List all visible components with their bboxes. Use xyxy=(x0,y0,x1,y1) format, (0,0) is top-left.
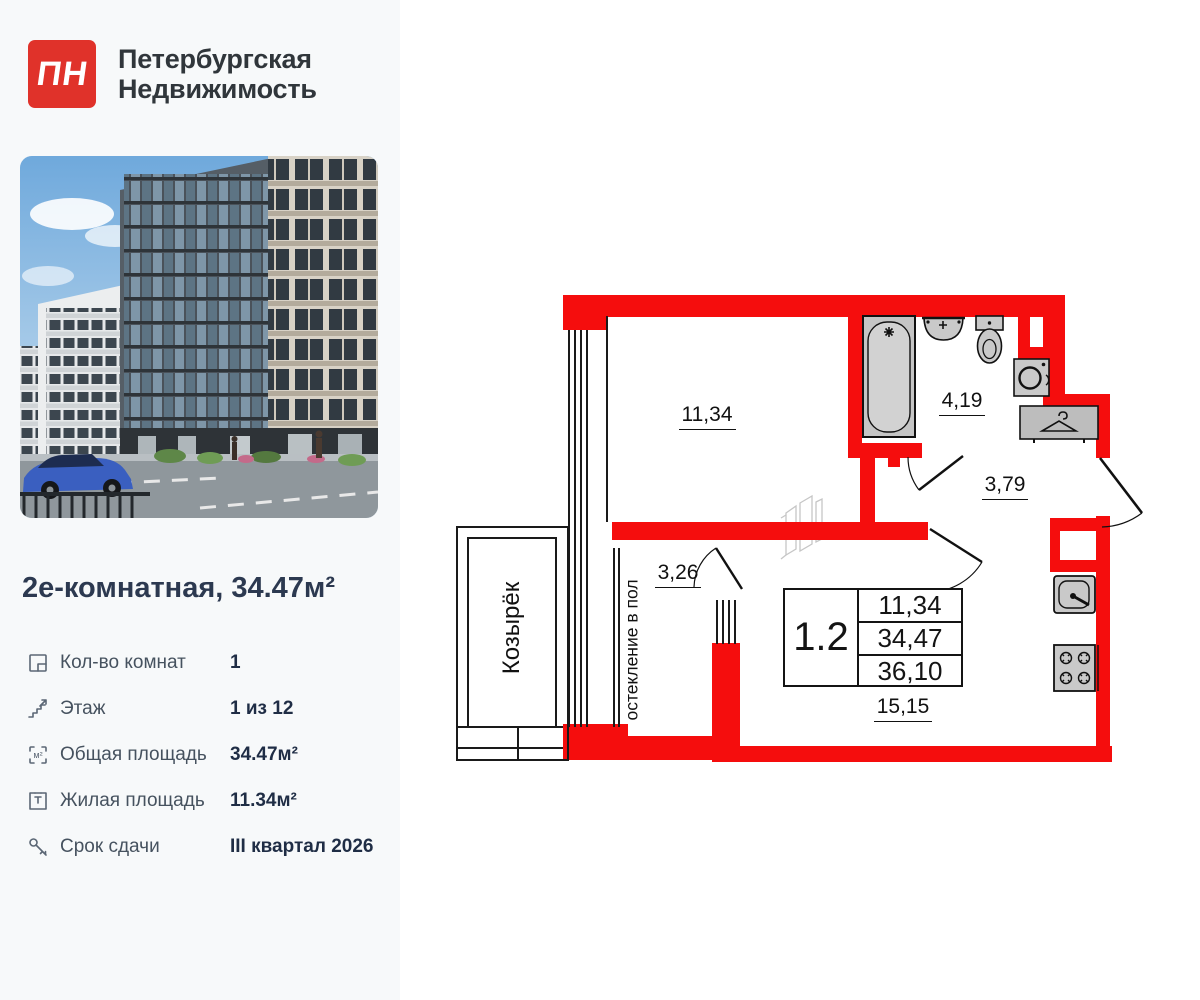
detail-row-living-area: Жилая площадь 11.34м² xyxy=(26,778,376,824)
page: { "brand": { "logo_text": "ПН", "name_li… xyxy=(0,0,1200,1000)
rooms-icon xyxy=(26,651,50,675)
unit-full-area: 36,10 xyxy=(859,654,961,687)
brand-logo: ПН xyxy=(28,40,96,108)
room-label-living: 11,34 xyxy=(655,403,759,427)
building-photo[interactable] xyxy=(20,156,378,518)
floor-plan[interactable]: 11,34 4,19 3,79 3,26 15,15 остекление в … xyxy=(450,285,1165,775)
washing-machine-icon xyxy=(1014,359,1049,396)
unit-info-table: 1.2 11,34 34,47 36,10 xyxy=(783,588,963,687)
stove-icon xyxy=(1054,645,1098,691)
glazing-annotation: остекление в пол xyxy=(622,579,643,720)
svg-text:м²: м² xyxy=(33,750,42,760)
detail-row-deadline: Срок сдачи III квартал 2026 xyxy=(26,824,376,870)
unit-total-area: 34,47 xyxy=(859,621,961,654)
window-glazing-lines xyxy=(568,316,736,727)
room-label-bathroom: 4,19 xyxy=(912,389,1012,413)
wardrobe-icon xyxy=(1020,406,1098,443)
floor-icon xyxy=(26,697,50,721)
living-area-icon xyxy=(26,789,50,813)
canopy-annotation: Козырёк xyxy=(498,582,526,675)
total-area-icon: м² xyxy=(26,743,50,767)
brand-name: Петербургская Недвижимость xyxy=(118,44,317,104)
key-icon xyxy=(26,835,50,859)
detail-row-total-area: м² Общая площадь 34.47м² xyxy=(26,732,376,778)
detail-row-floor: Этаж 1 из 12 xyxy=(26,686,376,732)
unit-areas: 11,34 34,47 36,10 xyxy=(859,590,961,685)
room-label-balcony: 3,26 xyxy=(628,561,728,585)
hall-kitchen-door xyxy=(930,529,982,592)
unit-number: 1.2 xyxy=(785,590,859,685)
floor-plan-drawing xyxy=(450,285,1165,775)
sink-icon xyxy=(922,318,965,340)
room-label-hall: 3,79 xyxy=(955,473,1055,497)
unit-living-area: 11,34 xyxy=(859,590,961,621)
detail-row-rooms: Кол-во комнат 1 xyxy=(26,640,376,686)
brand-header[interactable]: ПН Петербургская Недвижимость xyxy=(28,40,317,108)
room-label-kitchen-living: 15,15 xyxy=(853,695,953,719)
bathtub-icon xyxy=(863,316,915,437)
listing-details: Кол-во комнат 1 Этаж 1 из 12 м² Общая пл… xyxy=(26,640,376,870)
listing-sidebar: ПН Петербургская Недвижимость xyxy=(0,0,400,1000)
building-photo-illustration xyxy=(20,156,378,518)
brand-logo-text: ПН xyxy=(34,55,90,94)
listing-title: 2е-комнатная, 34.47м² xyxy=(22,572,335,605)
kitchen-sink-icon xyxy=(1054,576,1095,613)
toilet-icon xyxy=(976,316,1003,363)
